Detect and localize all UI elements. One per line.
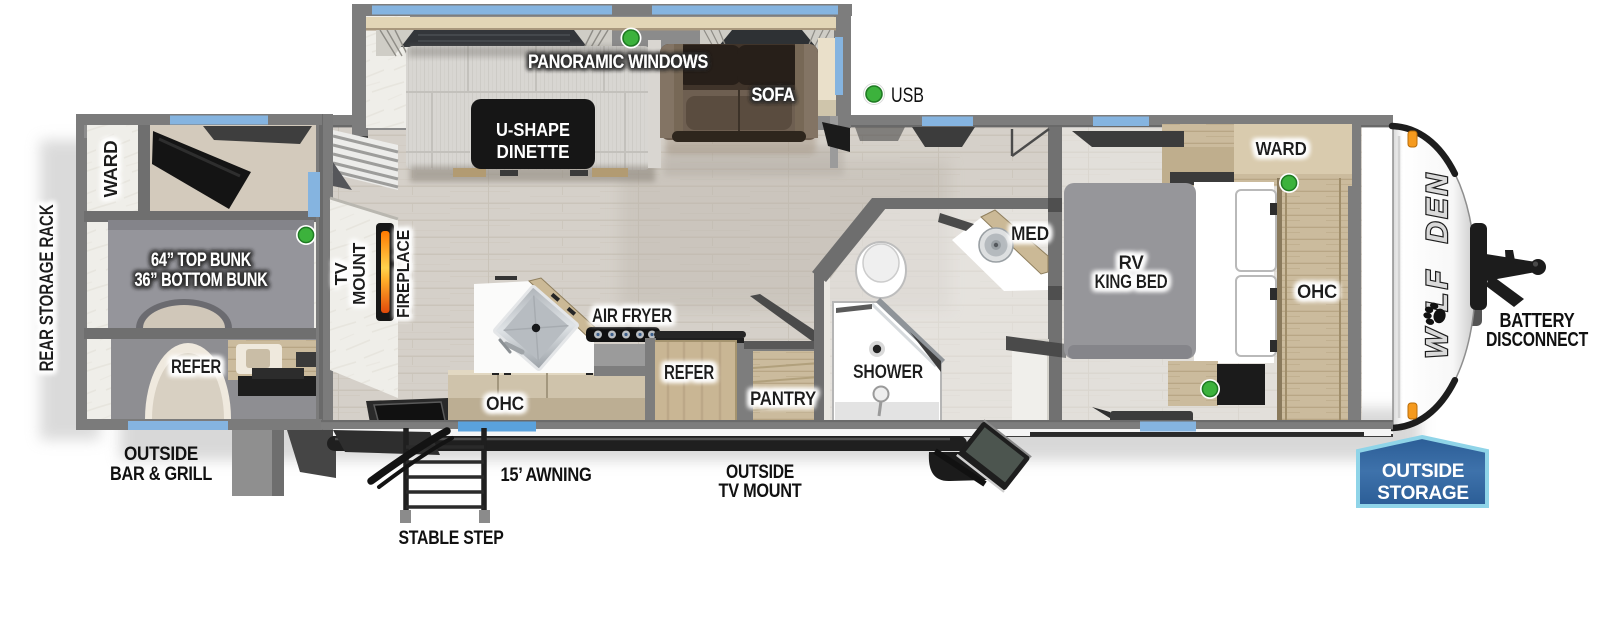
svg-text:OUTSIDE: OUTSIDE <box>726 462 794 483</box>
svg-text:36” BOTTOM BUNK: 36” BOTTOM BUNK <box>135 270 268 291</box>
svg-text:OHC: OHC <box>1297 281 1337 303</box>
svg-text:USB: USB <box>891 84 924 107</box>
svg-text:DEN: DEN <box>1421 171 1454 243</box>
svg-text:SHOWER: SHOWER <box>853 362 923 383</box>
svg-text:KING BED: KING BED <box>1095 272 1168 293</box>
svg-text:MED: MED <box>1011 224 1049 245</box>
svg-text:OUTSIDE: OUTSIDE <box>1382 461 1464 482</box>
svg-text:AIR FRYER: AIR FRYER <box>592 306 672 327</box>
svg-text:REFER: REFER <box>171 357 221 378</box>
svg-text:OUTSIDE: OUTSIDE <box>124 444 198 465</box>
svg-text:TV: TV <box>331 262 351 286</box>
svg-text:OHC: OHC <box>486 394 525 415</box>
svg-text:DISCONNECT: DISCONNECT <box>1486 329 1588 351</box>
svg-text:W: W <box>1419 327 1454 359</box>
svg-text:WARD: WARD <box>101 140 121 197</box>
svg-text:SOFA: SOFA <box>752 85 795 106</box>
svg-text:STABLE STEP: STABLE STEP <box>399 528 505 549</box>
svg-text:REAR STORAGE RACK: REAR STORAGE RACK <box>37 204 58 371</box>
svg-text:15’ AWNING: 15’ AWNING <box>501 465 592 486</box>
svg-text:FIREPLACE: FIREPLACE <box>393 230 413 318</box>
svg-text:DINETTE: DINETTE <box>497 141 570 162</box>
svg-text:U-SHAPE: U-SHAPE <box>496 119 570 140</box>
svg-text:MOUNT: MOUNT <box>349 242 369 305</box>
svg-text:RV: RV <box>1119 253 1145 274</box>
svg-text:PANORAMIC WINDOWS: PANORAMIC WINDOWS <box>528 51 708 73</box>
svg-text:PANTRY: PANTRY <box>750 388 816 410</box>
svg-text:BAR & GRILL: BAR & GRILL <box>110 464 213 485</box>
svg-text:WARD: WARD <box>1256 139 1307 159</box>
svg-text:STORAGE: STORAGE <box>1377 483 1469 504</box>
svg-text:64” TOP BUNK: 64” TOP BUNK <box>151 250 251 271</box>
svg-text:REFER: REFER <box>664 362 715 384</box>
svg-text:TV MOUNT: TV MOUNT <box>719 481 803 502</box>
